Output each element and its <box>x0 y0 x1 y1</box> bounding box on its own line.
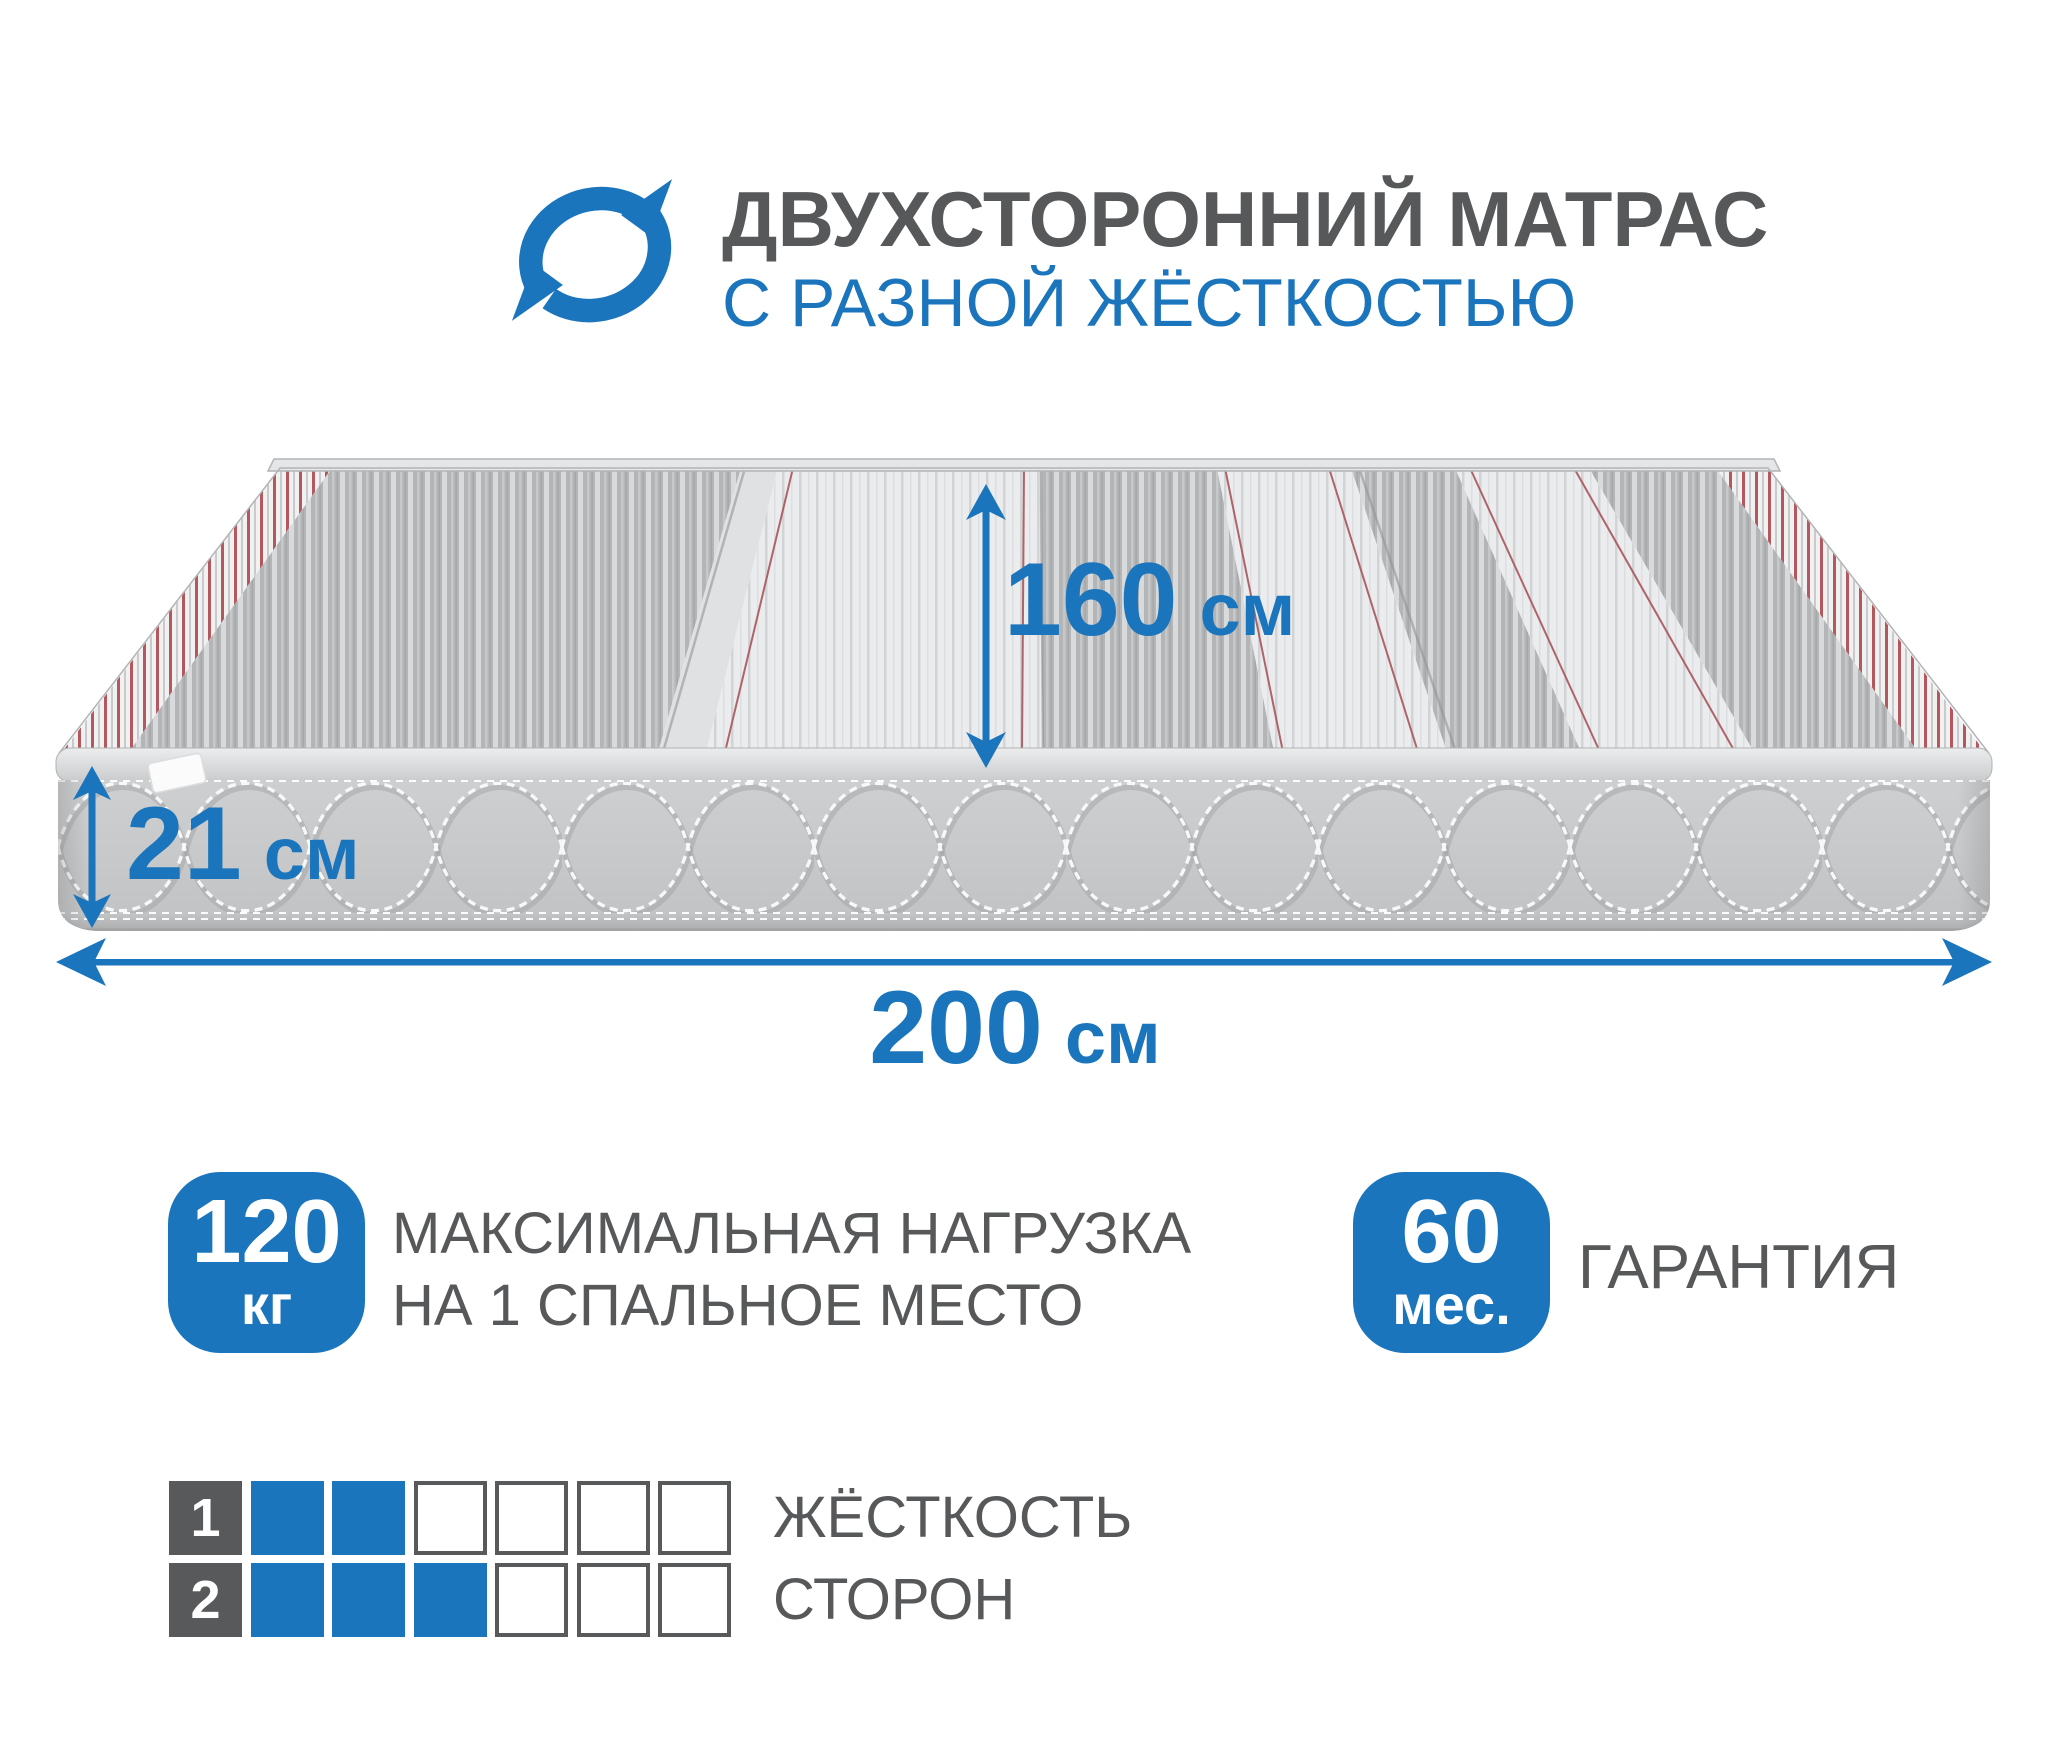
max-load-value: 120 <box>191 1190 341 1276</box>
depth-value: 160 <box>1004 542 1178 658</box>
firmness-cell <box>658 1563 731 1637</box>
max-load-badge: 120 кг <box>168 1172 365 1353</box>
warranty-badge: 60 мес. <box>1353 1172 1550 1353</box>
width-dimension-label: 200см <box>58 976 1972 1080</box>
rotate-arrows-icon <box>498 170 686 330</box>
firmness-cell <box>577 1481 650 1555</box>
firmness-row2-index: 2 <box>169 1563 242 1637</box>
firmness-cell <box>577 1563 650 1637</box>
page-title: ДВУХСТОРОННИЙ МАТРАС <box>722 174 1768 265</box>
width-value: 200 <box>869 970 1043 1086</box>
firmness-cell <box>251 1563 324 1637</box>
firmness-row1-index: 1 <box>169 1481 242 1555</box>
max-load-unit: кг <box>241 1276 292 1335</box>
warranty-unit: мес. <box>1392 1276 1511 1335</box>
firmness-cell <box>332 1563 405 1637</box>
depth-unit: см <box>1200 568 1296 651</box>
max-load-caption-line2: НА 1 СПАЛЬНОЕ МЕСТО <box>392 1270 1191 1342</box>
firmness-cell <box>658 1481 731 1555</box>
max-load-caption-line1: МАКСИМАЛЬНАЯ НАГРУЗКА <box>392 1198 1191 1270</box>
firmness-cell <box>495 1481 568 1555</box>
firmness-caption-line1: ЖЁСТКОСТЬ <box>773 1481 1132 1555</box>
page-subtitle: С РАЗНОЙ ЖЁСТКОСТЬЮ <box>722 264 1576 342</box>
firmness-row-side1: 1 <box>169 1481 731 1555</box>
infographic-canvas: ДВУХСТОРОННИЙ МАТРАС С РАЗНОЙ ЖЁСТКОСТЬЮ… <box>0 0 2048 1757</box>
firmness-cell <box>332 1481 405 1555</box>
firmness-scale: 1 2 <box>169 1481 731 1637</box>
warranty-caption: ГАРАНТИЯ <box>1578 1230 1899 1307</box>
firmness-cell <box>495 1563 568 1637</box>
firmness-scale-caption: ЖЁСТКОСТЬ СТОРОН <box>773 1481 1132 1645</box>
height-dimension-label: 21см <box>126 792 360 896</box>
height-unit: см <box>264 812 360 895</box>
firmness-caption-line2: СТОРОН <box>773 1563 1132 1637</box>
warranty-value: 60 <box>1401 1190 1501 1276</box>
firmness-cell <box>251 1481 324 1555</box>
max-load-caption: МАКСИМАЛЬНАЯ НАГРУЗКА НА 1 СПАЛЬНОЕ МЕСТ… <box>392 1198 1191 1342</box>
firmness-row-side2: 2 <box>169 1563 731 1637</box>
height-value: 21 <box>126 786 242 902</box>
width-unit: см <box>1065 996 1161 1079</box>
firmness-cell <box>414 1481 487 1555</box>
depth-dimension-label: 160см <box>1004 548 1295 652</box>
firmness-cell <box>414 1563 487 1637</box>
